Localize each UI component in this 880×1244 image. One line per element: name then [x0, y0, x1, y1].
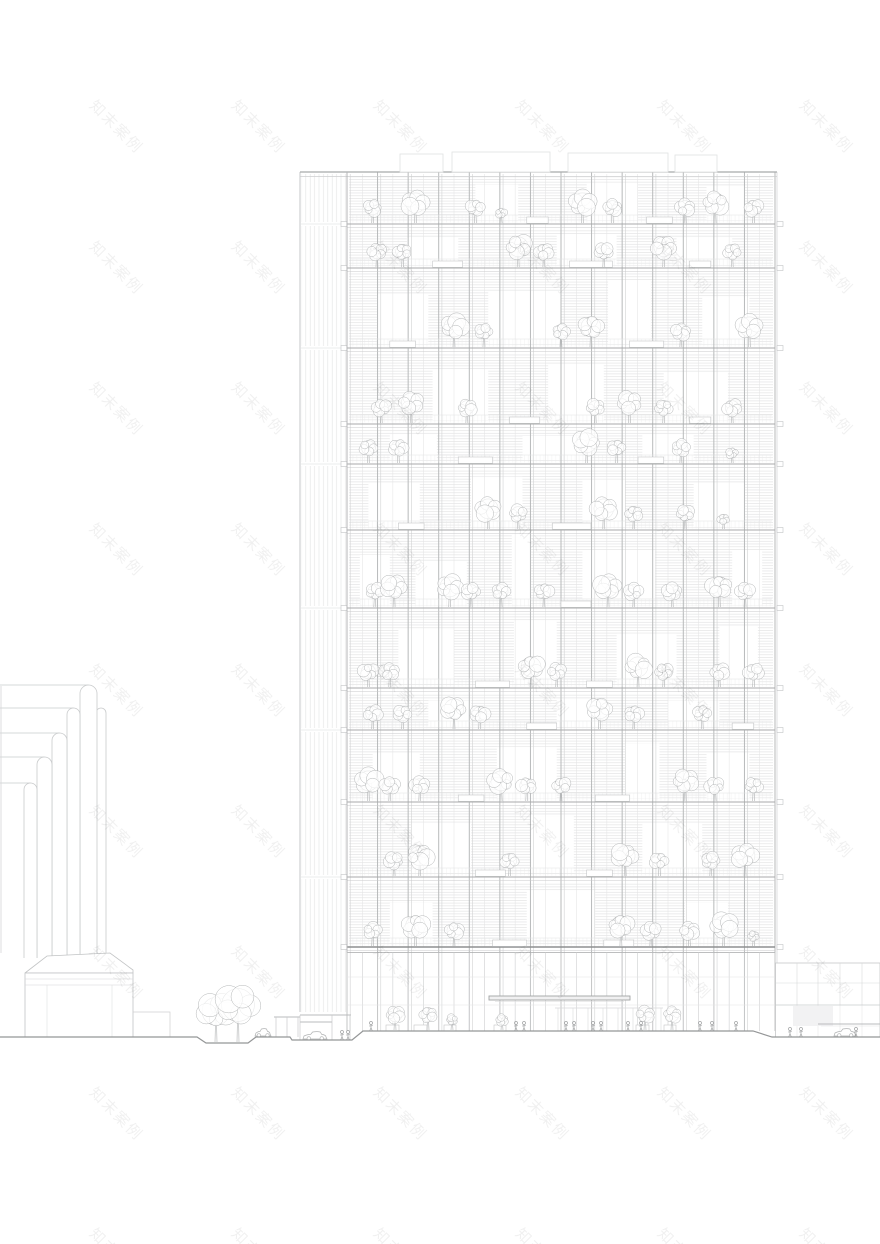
monument-structure — [0, 685, 170, 1037]
annex-building — [776, 963, 880, 1037]
architectural-elevation-page: 知末案例知末案例知末案例知末案例知末案例知末案例知末案例知末案例知末案例知末案例… — [0, 0, 880, 1244]
tower-facade — [300, 152, 783, 1036]
elevation-canvas — [0, 0, 880, 1244]
